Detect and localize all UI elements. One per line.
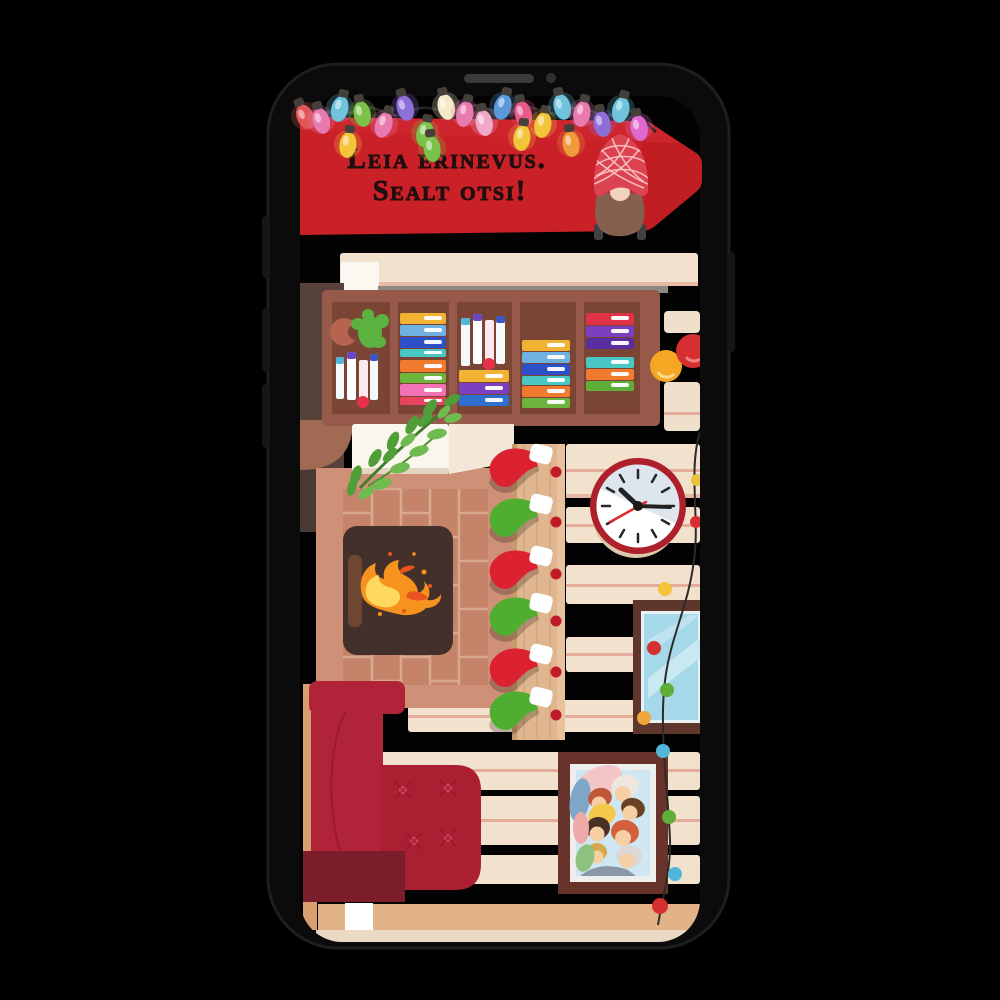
- svg-text:Sealt otsi!: Sealt otsi!: [373, 176, 527, 207]
